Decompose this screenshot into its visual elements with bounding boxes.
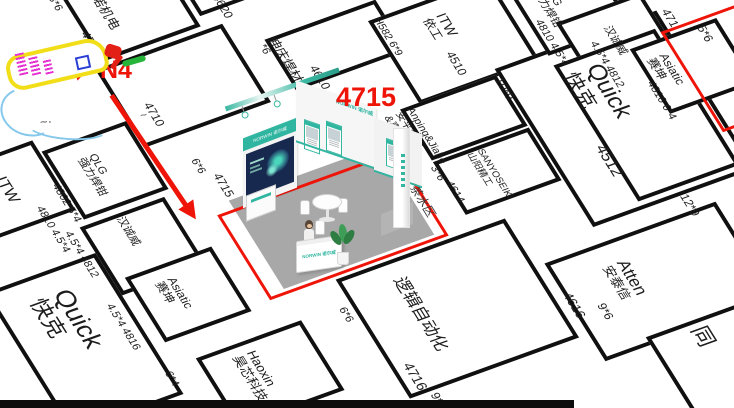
booth-size-label: 6*6 [188,157,208,175]
spotlight [273,99,282,108]
expo-floor-map: 13*6 盟诺机电 4720 4620 4710 *6 伸庆焊材 4610 半 … [0,0,734,408]
hall-boundary-wall [0,400,574,408]
round-table [312,194,342,210]
spotlight [241,111,250,120]
potted-plant [330,222,356,266]
booth-callout-4715: 4715 [336,82,396,113]
chair [315,220,325,235]
booth-number-label: 4715 [210,172,237,199]
chair [300,200,310,215]
venue-pillar [393,128,410,228]
booth-size-label: 13*6 [42,0,66,13]
marker-squiggle: ~· [39,113,53,130]
